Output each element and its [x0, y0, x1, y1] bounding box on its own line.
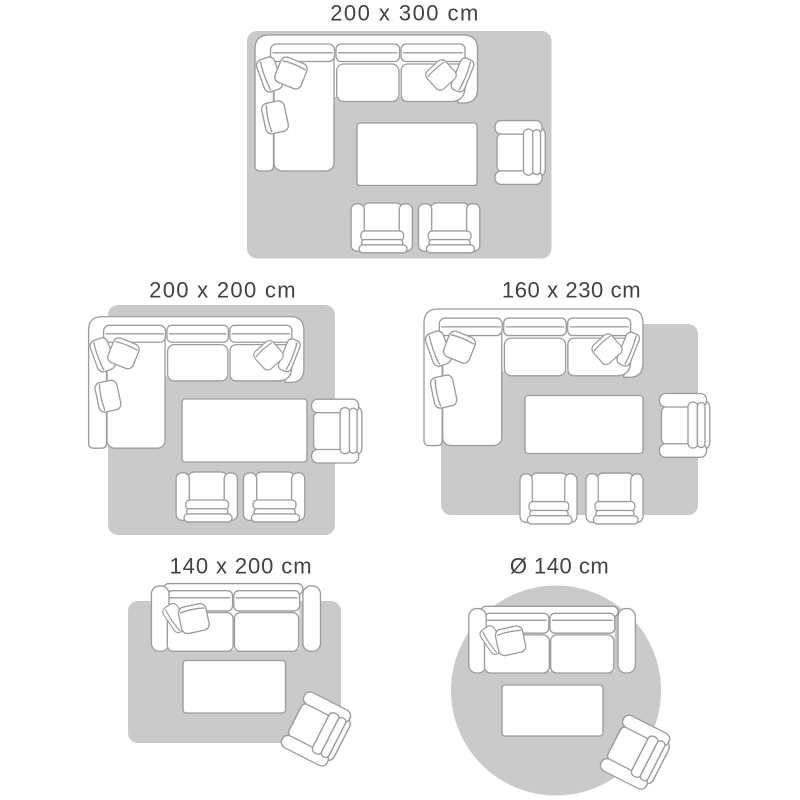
svg-text:200 x 300 cm: 200 x 300 cm [330, 1, 479, 26]
svg-text:140 x 200 cm: 140 x 200 cm [170, 554, 313, 579]
svg-text:Ø 140 cm: Ø 140 cm [510, 554, 609, 579]
svg-text:160 x 230 cm: 160 x 230 cm [502, 277, 641, 302]
svg-text:200 x 200 cm: 200 x 200 cm [149, 277, 297, 302]
